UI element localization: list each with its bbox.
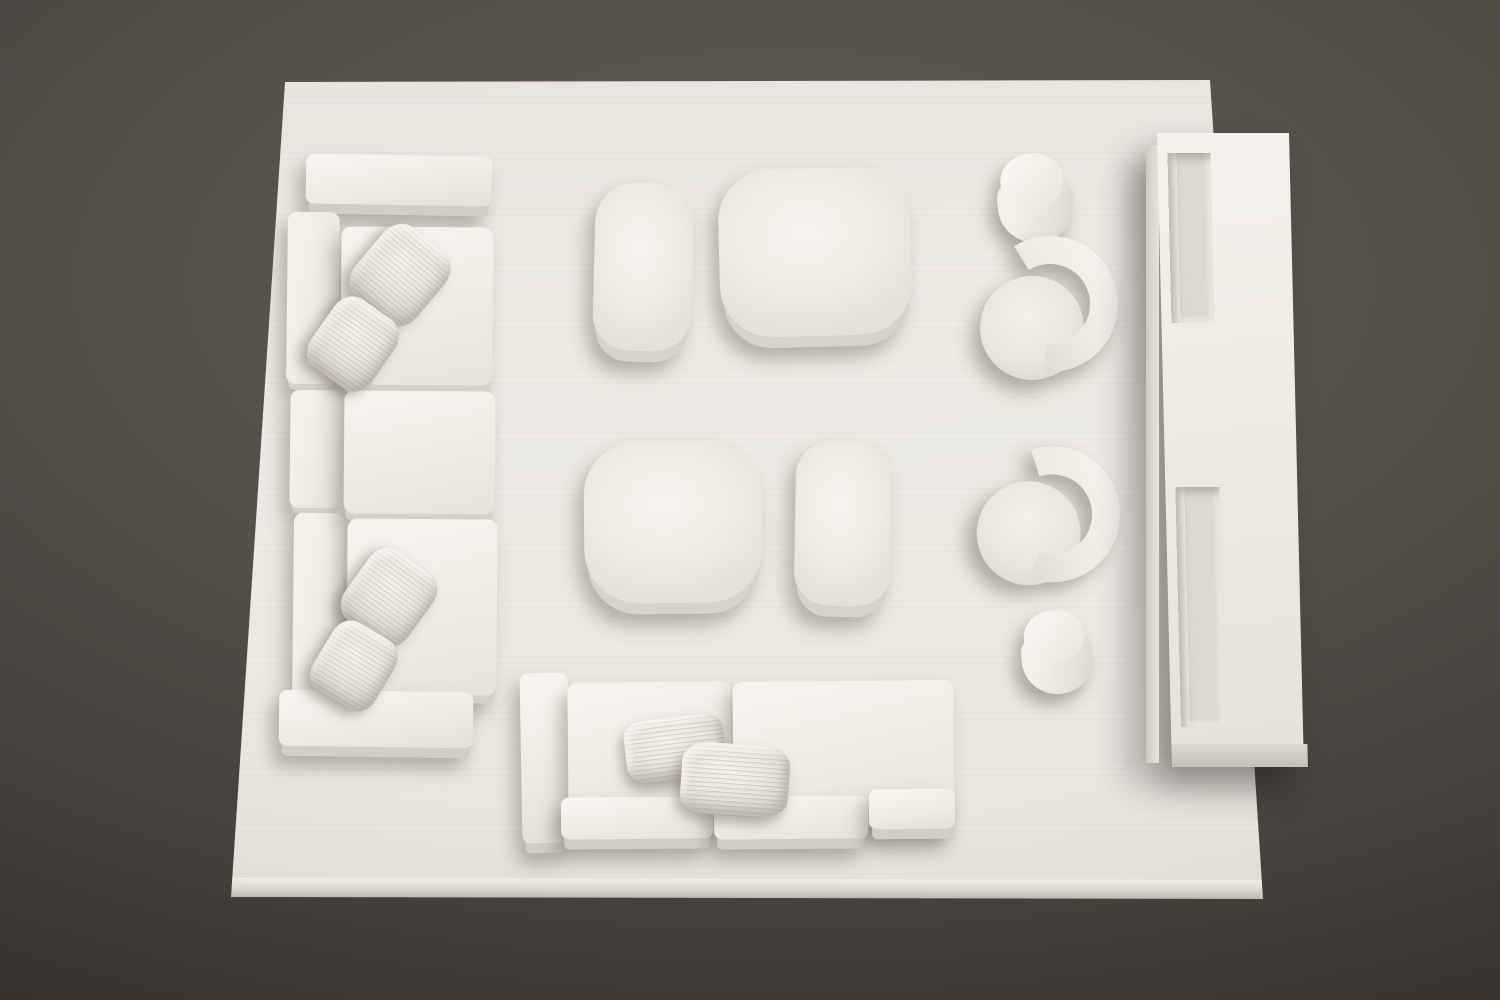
sofa-left-seat-cushion (344, 390, 496, 514)
sofa-bottom-pillow (679, 740, 792, 819)
model-photo-scene (0, 0, 1500, 1000)
sofa-left-top-arm (306, 153, 493, 206)
coffee-table (583, 440, 763, 604)
bench-ottoman (592, 182, 695, 353)
sofa-bottom-front-cushion (869, 789, 955, 830)
barrel-chair-top (978, 226, 1120, 390)
cylinder-stool (1017, 607, 1096, 697)
square-ottoman (717, 166, 913, 339)
console-top-face (1157, 133, 1303, 745)
console-recessed-shelf (1167, 153, 1214, 323)
console-recessed-shelf (1175, 487, 1225, 727)
sofa-left-back-cushion (289, 390, 340, 509)
media-console (1146, 133, 1308, 769)
console-side-face (1146, 145, 1159, 763)
side-table (794, 441, 893, 607)
